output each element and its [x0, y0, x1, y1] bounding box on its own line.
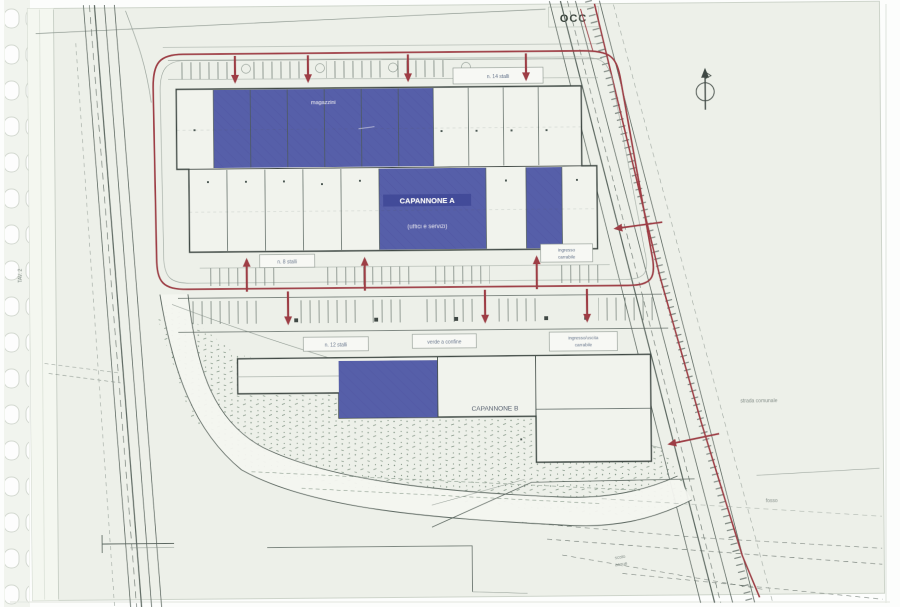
scanned-page: { "document": { "kind": "scanned site pl…: [0, 0, 900, 607]
label-green-boundary: verde a confine: [427, 339, 461, 345]
building-a-roof-label: magazzini: [311, 100, 336, 106]
sheet-tag-vertical-text: TAV. 2: [18, 268, 24, 282]
road-name-label: strada comunale: [740, 398, 777, 404]
building-a-subtitle: (uffici e servizi): [407, 224, 447, 230]
label-gate-upper-line2: carrabile: [558, 254, 576, 259]
building-b-name: CAPANNONE B: [472, 405, 519, 412]
label-stalls-top: n. 14 stalli: [487, 74, 510, 80]
label-stalls-front: n. 8 stalli: [277, 259, 297, 265]
label-gate-upper-line1: ingresso: [558, 247, 576, 252]
ditch-label: fosso: [766, 498, 778, 504]
label-gate-lower-line1: ingresso/uscita: [568, 335, 599, 340]
label-gate-lower-line2: carrabile: [575, 342, 593, 347]
punched-holes: [5, 0, 29, 607]
building-a-name: CAPANNONE A: [400, 196, 456, 205]
label-stalls-lower: n. 12 stalli: [325, 342, 348, 348]
building-a: magazzini CAPANNONE A (uffici e servizi): [176, 86, 597, 253]
site-plan-drawing: TAV. 2 OCC: [0, 0, 900, 607]
